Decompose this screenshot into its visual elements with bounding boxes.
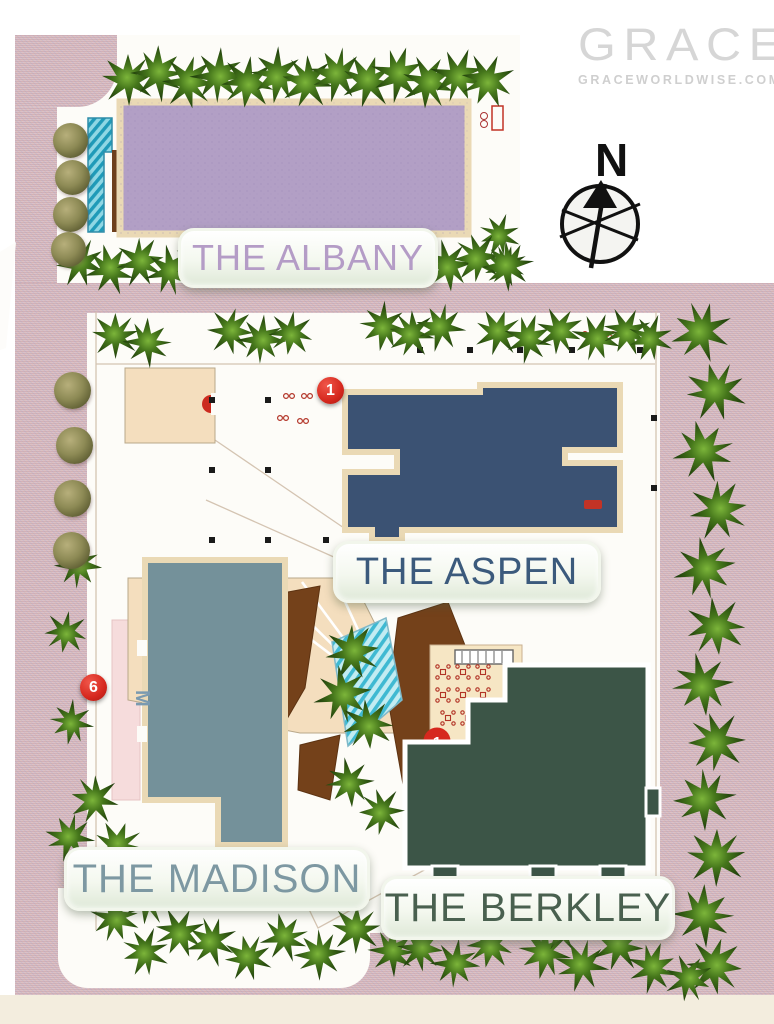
logo-brand-text: GRACE xyxy=(578,22,774,67)
marker-6-madison[interactable]: 6 xyxy=(80,674,107,701)
albany-label-plate[interactable]: THE ALBANY xyxy=(178,228,438,288)
madison-building-footprint[interactable] xyxy=(145,560,285,845)
compass-north-label: N xyxy=(595,136,628,186)
aspen-building-footprint[interactable] xyxy=(345,385,620,540)
berkley-label: THE BERKLEY xyxy=(385,886,672,931)
madison-notch xyxy=(137,640,147,656)
compass-rose: N xyxy=(545,136,655,276)
marker-1-aspen[interactable]: 1 xyxy=(317,377,344,404)
aspen-roof-feature xyxy=(584,500,602,509)
marker-number: 6 xyxy=(89,679,98,697)
site-plan-canvas: 1 M THE ALBANY THE ASPEN THE MADISON THE… xyxy=(0,0,774,1024)
bar-counter xyxy=(455,650,513,664)
aspen-label: THE ASPEN xyxy=(356,551,578,594)
madison-notch xyxy=(137,726,147,742)
madison-label-plate[interactable]: THE MADISON xyxy=(64,847,370,911)
albany-pool xyxy=(88,118,112,232)
albany-label: THE ALBANY xyxy=(192,237,424,279)
madison-label: THE MADISON xyxy=(73,857,362,902)
albany-texture xyxy=(120,102,468,234)
marker-number: 1 xyxy=(326,382,335,400)
aspen-label-plate[interactable]: THE ASPEN xyxy=(333,541,601,603)
berkley-label-plate[interactable]: THE BERKLEY xyxy=(381,876,675,940)
retail-area-upper xyxy=(125,368,215,443)
stair-mask xyxy=(211,393,223,415)
logo-domain-text: GRACEWORLDWISE.COM xyxy=(578,73,768,87)
grace-logo: GRACE GRACEWORLDWISE.COM xyxy=(578,22,768,87)
road-marking xyxy=(0,242,16,350)
side-letter-annotation: M xyxy=(131,690,153,707)
